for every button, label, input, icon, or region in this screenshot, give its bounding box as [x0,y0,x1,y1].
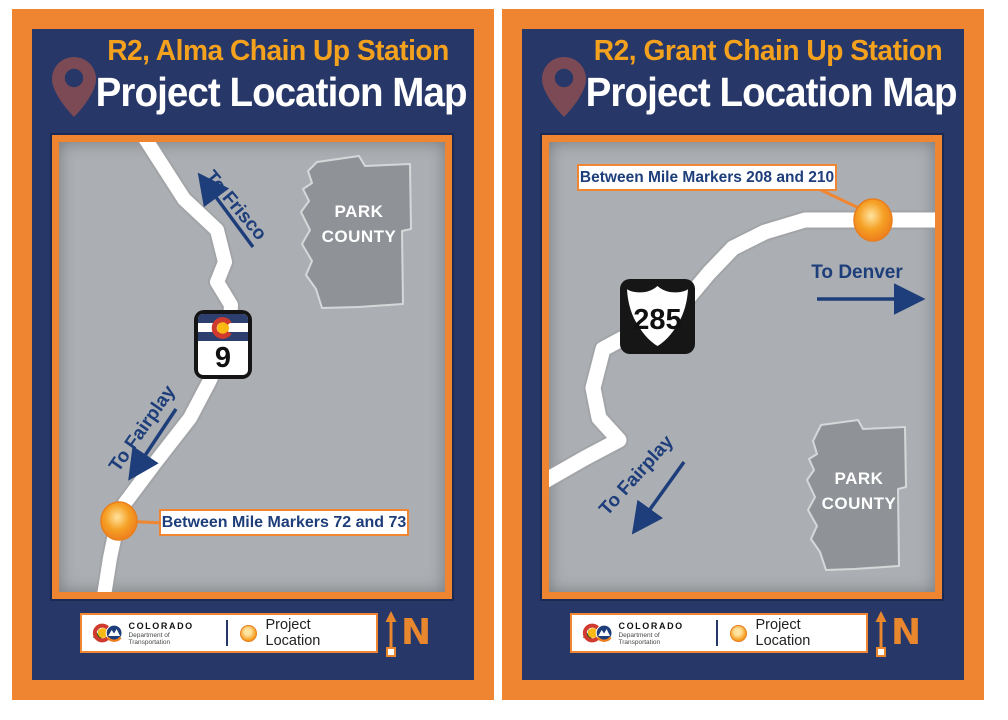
project-location-dot [854,199,892,241]
project-location-dot-icon [240,625,257,642]
marker-connector-line [821,190,863,210]
north-label: N [401,612,431,653]
north-label: N [891,612,921,653]
cdot-org-name: COLORADO [128,621,211,631]
cdot-dept-name: Department of Transportation [128,632,211,646]
cdot-logo-icon [580,618,613,648]
page-subtitle: Project Location Map [96,69,461,116]
page-subtitle: Project Location Map [586,69,951,116]
legend-divider [226,620,228,646]
mile-marker-callout: Between Mile Markers 72 and 73 [159,509,409,536]
flyer-grant: R2, Grant Chain Up Station Project Locat… [502,9,984,700]
legend: COLORADO Department of Transportation Pr… [80,613,378,653]
cdot-logo: COLORADO Department of Transportation [580,618,702,648]
colorado-flag [198,314,248,341]
route-number: 9 [198,341,248,375]
cdot-dept-name: Department of Transportation [618,632,701,646]
flyer-alma: R2, Alma Chain Up Station Project Locati… [12,9,494,700]
us-285-shield: 285 [620,279,695,354]
north-arrow-icon [874,610,888,657]
direction-label-denver: To Denver [797,262,917,284]
cdot-logo: COLORADO Department of Transportation [90,618,212,648]
mile-marker-callout: Between Mile Markers 208 and 210 [577,164,837,191]
page-title: R2, Alma Chain Up Station [90,35,466,68]
legend-divider [716,620,718,646]
legend: COLORADO Department of Transportation Pr… [570,613,868,653]
page: R2, Alma Chain Up Station Project Locati… [0,0,1008,720]
county-label: PARK COUNTY [811,467,907,516]
cdot-org-name: COLORADO [618,621,701,631]
project-location-dot [101,502,137,540]
project-location-dot-icon [730,625,747,642]
route-number: 285 [633,304,681,336]
header-titles: R2, Grant Chain Up Station Project Locat… [574,35,962,116]
north-arrow-icon [384,610,398,657]
cdot-logo-icon [90,618,123,648]
page-title: R2, Grant Chain Up Station [580,35,956,68]
colorado-c-icon [211,316,235,340]
header-titles: R2, Alma Chain Up Station Project Locati… [84,35,472,116]
map-alma: PARK COUNTY To Frisco To Fairplay Betwee… [52,135,452,599]
highway-9-shield: 9 [194,310,252,379]
map-grant: PARK COUNTY To Denver To Fairplay Betwee… [542,135,942,599]
county-label: PARK COUNTY [311,200,407,249]
legend-item-label: Project Location [266,617,368,649]
legend-item-label: Project Location [756,617,858,649]
